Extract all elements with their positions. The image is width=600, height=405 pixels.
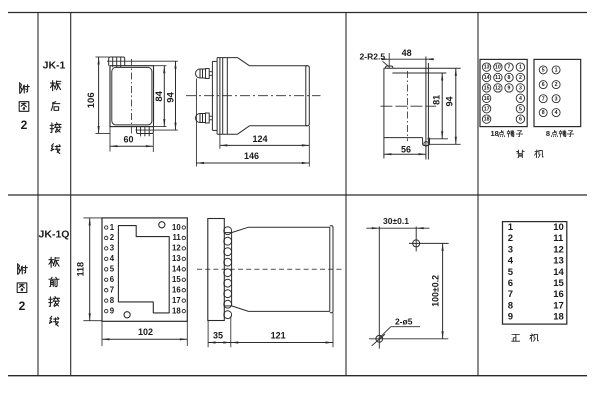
svg-text:118: 118	[75, 262, 85, 277]
svg-text:7: 7	[508, 289, 513, 300]
svg-text:JK-1: JK-1	[43, 59, 66, 71]
svg-text:5: 5	[508, 267, 514, 278]
svg-text:16: 16	[553, 289, 564, 300]
svg-text:2: 2	[110, 233, 115, 242]
svg-text:8: 8	[508, 300, 513, 311]
svg-text:3: 3	[519, 85, 522, 91]
svg-text:121: 121	[271, 330, 286, 340]
svg-text:9: 9	[508, 85, 511, 91]
svg-text:2: 2	[508, 233, 513, 244]
svg-text:8: 8	[110, 296, 115, 305]
svg-text:16: 16	[484, 96, 490, 102]
svg-text:12: 12	[553, 244, 564, 255]
svg-text:100±0.2: 100±0.2	[430, 275, 440, 307]
svg-text:2: 2	[21, 118, 28, 132]
svg-text:16: 16	[172, 285, 181, 294]
svg-text:81: 81	[431, 95, 441, 105]
svg-text:2: 2	[519, 75, 522, 81]
svg-text:4: 4	[519, 96, 522, 102]
svg-text:14: 14	[484, 75, 490, 81]
svg-text:15: 15	[484, 85, 490, 91]
svg-text:5: 5	[110, 265, 115, 274]
svg-text:17: 17	[484, 106, 490, 112]
svg-text:8: 8	[542, 110, 545, 116]
svg-text:94: 94	[444, 96, 454, 106]
svg-text:7: 7	[110, 285, 114, 294]
svg-text:6: 6	[542, 82, 545, 88]
svg-text:6: 6	[110, 275, 115, 284]
svg-text:18: 18	[553, 312, 564, 323]
svg-text:18: 18	[172, 306, 181, 315]
svg-text:2-R2.5: 2-R2.5	[360, 51, 386, 61]
svg-text:60: 60	[123, 134, 133, 144]
svg-text:2: 2	[555, 82, 558, 88]
svg-text:7: 7	[542, 96, 545, 102]
svg-text:11: 11	[172, 233, 181, 242]
svg-text:5: 5	[519, 106, 522, 112]
svg-text:9: 9	[110, 306, 115, 315]
svg-text:8: 8	[546, 129, 550, 138]
svg-text:35: 35	[213, 330, 223, 340]
svg-text:17: 17	[553, 300, 564, 311]
svg-text:1: 1	[555, 67, 558, 73]
svg-text:4: 4	[508, 256, 514, 267]
svg-text:3: 3	[555, 96, 558, 102]
svg-text:56: 56	[401, 145, 411, 155]
svg-text:1: 1	[508, 222, 514, 233]
svg-text:4: 4	[555, 110, 558, 116]
svg-text:1: 1	[519, 65, 522, 71]
svg-text:48: 48	[402, 48, 412, 58]
svg-text:14: 14	[553, 267, 564, 278]
svg-text:9: 9	[508, 312, 513, 323]
svg-text:8: 8	[508, 75, 511, 81]
svg-text:15: 15	[172, 275, 181, 284]
svg-text:7: 7	[508, 65, 511, 71]
svg-text:146: 146	[244, 151, 259, 161]
svg-text:30±0.1: 30±0.1	[383, 216, 409, 226]
svg-text:11: 11	[495, 75, 501, 81]
svg-text:102: 102	[138, 327, 153, 337]
svg-text:3: 3	[110, 244, 115, 253]
svg-text:18: 18	[484, 117, 490, 123]
svg-text:84: 84	[154, 90, 165, 101]
svg-text:10: 10	[495, 65, 501, 71]
svg-text:12: 12	[495, 85, 501, 91]
svg-text:12: 12	[172, 244, 181, 253]
svg-text:15: 15	[553, 278, 564, 289]
svg-text:17: 17	[172, 296, 181, 305]
svg-text:10: 10	[172, 223, 181, 232]
svg-text:10: 10	[553, 222, 564, 233]
svg-text:18: 18	[491, 129, 499, 138]
svg-text:JK-1Q: JK-1Q	[39, 228, 70, 240]
svg-text:4: 4	[110, 254, 115, 263]
svg-text:6: 6	[508, 278, 513, 289]
svg-text:1: 1	[110, 223, 115, 232]
svg-text:13: 13	[484, 65, 490, 71]
svg-text:13: 13	[553, 256, 564, 267]
svg-text:5: 5	[542, 67, 545, 73]
svg-text:14: 14	[172, 265, 181, 274]
svg-text:6: 6	[519, 117, 522, 123]
svg-text:94: 94	[166, 92, 177, 103]
svg-text:106: 106	[86, 92, 97, 108]
svg-text:2-ø5: 2-ø5	[395, 316, 413, 326]
svg-text:13: 13	[172, 254, 181, 263]
svg-text:2: 2	[19, 299, 26, 313]
svg-text:124: 124	[252, 134, 267, 144]
svg-text:11: 11	[553, 233, 564, 244]
svg-text:3: 3	[508, 244, 513, 255]
